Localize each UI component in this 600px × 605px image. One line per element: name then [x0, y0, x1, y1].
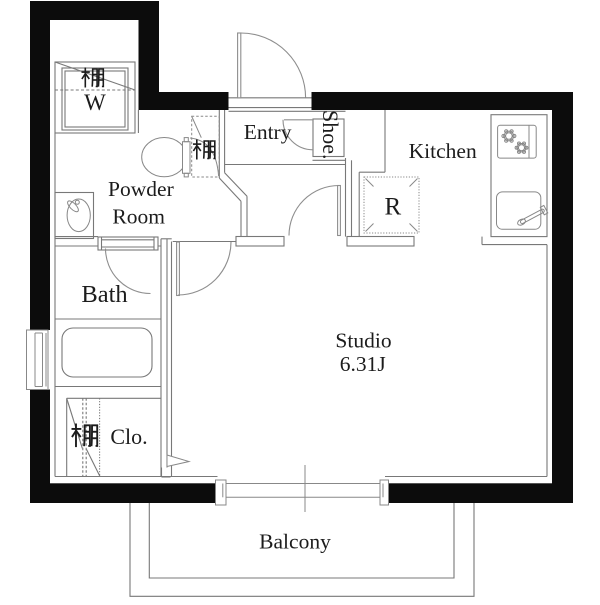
svg-text:Studio: Studio [335, 329, 391, 353]
svg-text:Room: Room [112, 205, 165, 229]
svg-text:Clo.: Clo. [110, 424, 147, 449]
svg-text:Powder: Powder [108, 177, 174, 201]
svg-text:Entry: Entry [244, 120, 292, 144]
svg-text:Shoe.: Shoe. [318, 110, 343, 160]
svg-text:Balcony: Balcony [259, 530, 331, 554]
svg-text:Bath: Bath [81, 281, 127, 308]
svg-text:W: W [84, 90, 106, 115]
svg-text:R: R [384, 194, 401, 221]
svg-text:Kitchen: Kitchen [409, 139, 477, 163]
svg-text:6.31J: 6.31J [340, 352, 386, 376]
